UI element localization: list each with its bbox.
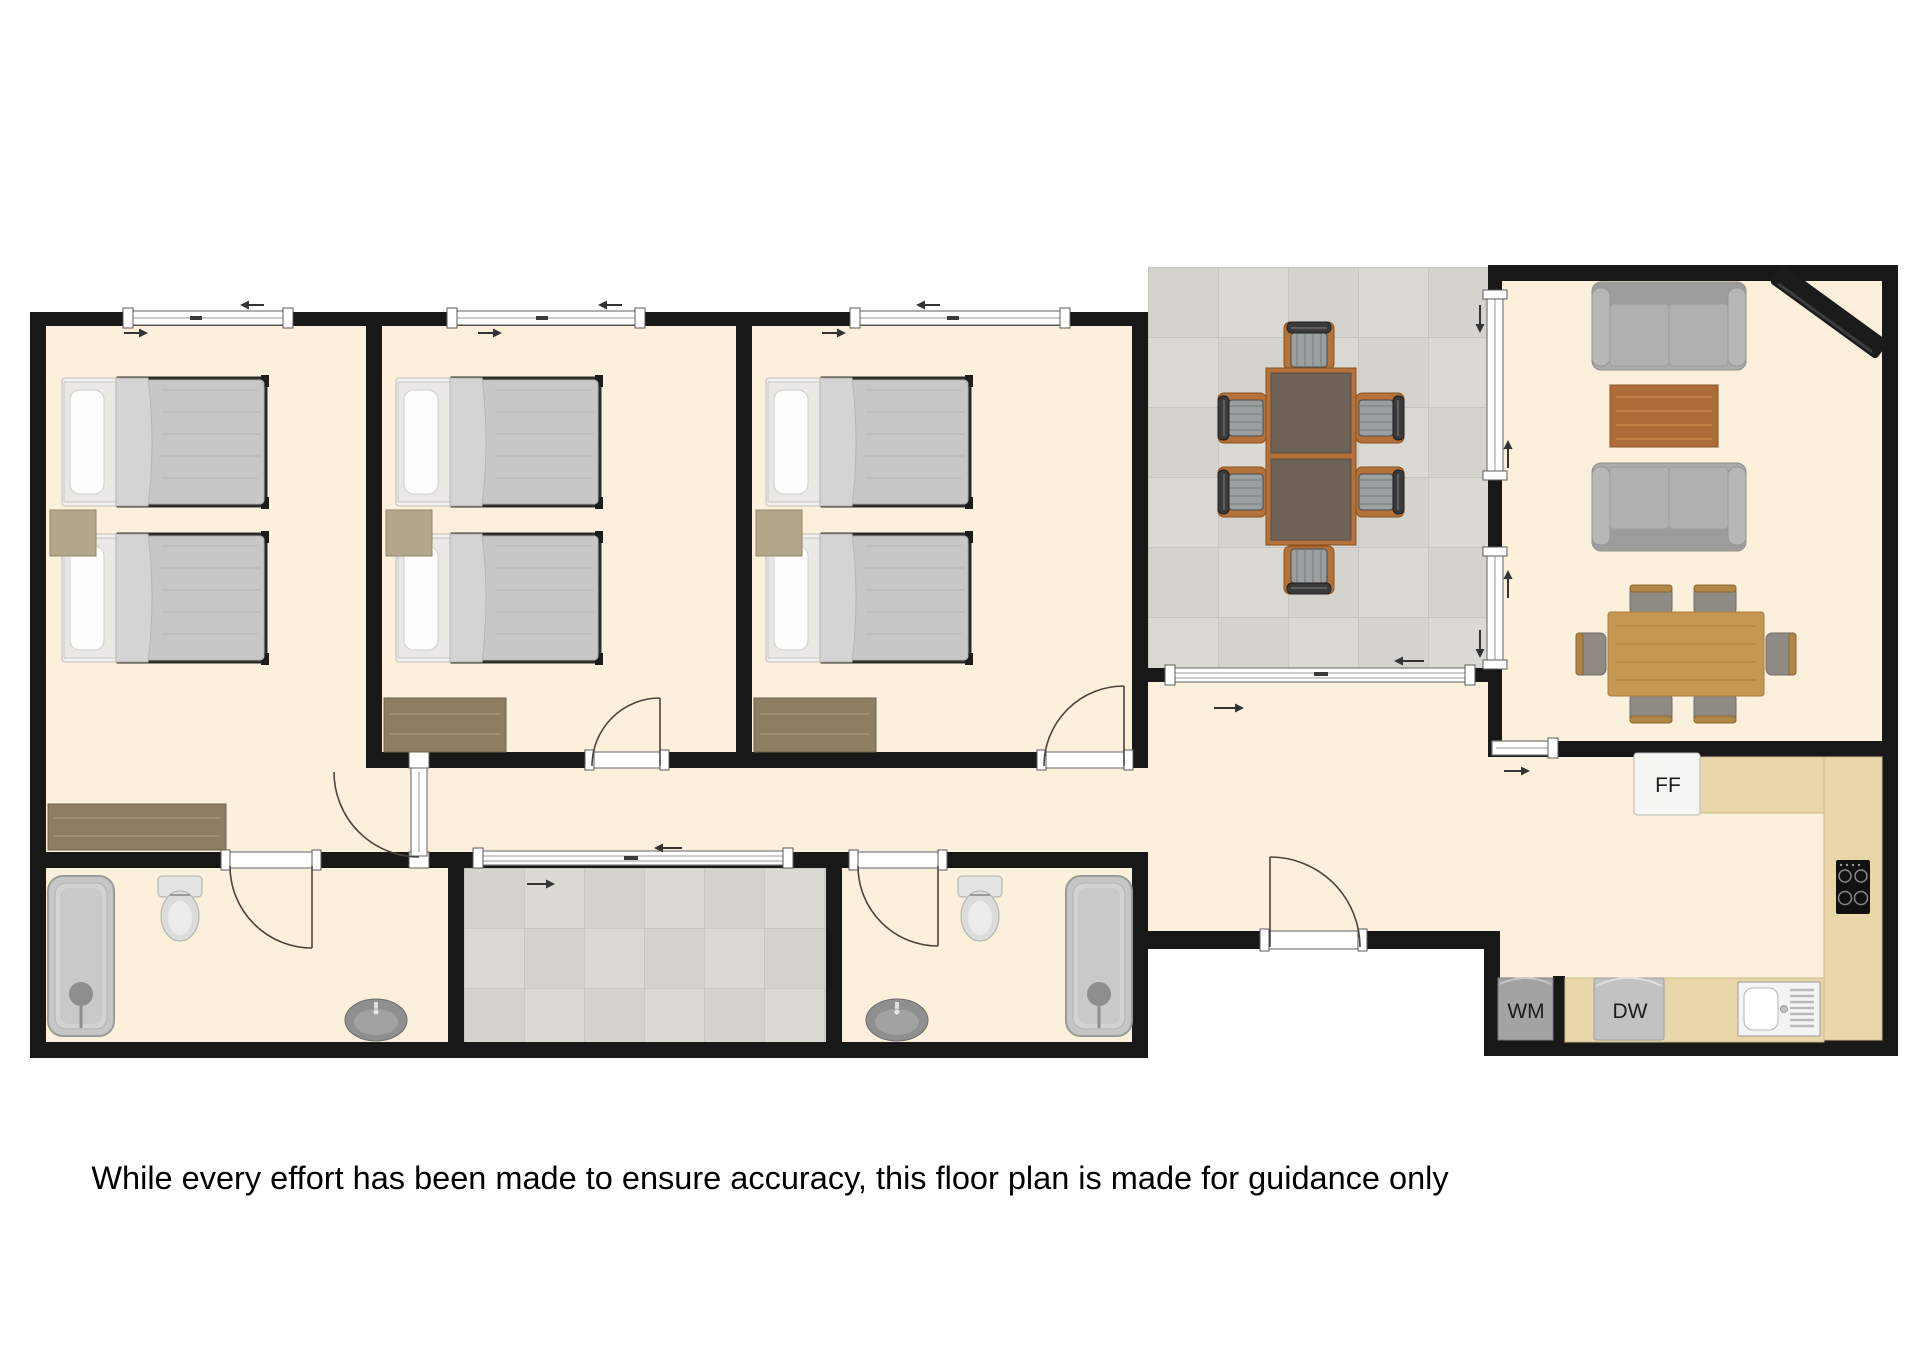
nightstand — [386, 510, 432, 556]
dresser — [754, 698, 876, 752]
terrace-table — [1266, 368, 1356, 545]
sink — [1738, 982, 1820, 1036]
dining-chair — [1630, 585, 1672, 615]
dining-chair — [1576, 633, 1606, 675]
dresser — [384, 698, 506, 752]
window — [1483, 547, 1507, 669]
dining-chair — [1630, 693, 1672, 723]
arrow-left-icon — [598, 301, 622, 310]
window — [123, 308, 293, 328]
disclaimer-text: While every effort has been made to ensu… — [70, 1160, 1470, 1197]
window — [447, 308, 645, 328]
terrace-sliding-door — [1165, 665, 1475, 685]
window — [1483, 290, 1507, 480]
single-bed — [62, 375, 269, 509]
sofa — [1592, 282, 1746, 370]
floor-plan-page: FF WM DW While every effort has been mad… — [0, 0, 1920, 1358]
washbasin — [345, 999, 407, 1041]
sofa — [1592, 463, 1746, 551]
nightstand — [50, 510, 96, 556]
single-bed — [766, 375, 973, 509]
dining-table — [1608, 612, 1764, 696]
fridge-freezer-label: FF — [1655, 774, 1681, 798]
terrace-chair — [1284, 546, 1334, 594]
dresser — [48, 804, 226, 850]
toilet — [158, 876, 202, 941]
window — [850, 308, 1070, 328]
washing-machine-label: WM — [1507, 1000, 1544, 1024]
toilet — [958, 876, 1002, 941]
floor-plan — [0, 0, 1920, 1358]
terrace-chair — [1284, 322, 1334, 370]
hob — [1836, 860, 1870, 914]
terrace-chair — [1218, 467, 1266, 517]
terrace-chair — [1356, 467, 1404, 517]
terrace-chair — [1218, 393, 1266, 443]
bathtub — [48, 876, 114, 1036]
washbasin — [866, 999, 928, 1041]
dining-chair — [1766, 633, 1796, 675]
arrow-left-icon — [916, 301, 940, 310]
dishwasher-label: DW — [1613, 1000, 1648, 1024]
hallway-floor — [1148, 682, 1488, 931]
coffee-table — [1610, 385, 1718, 447]
window — [1492, 738, 1558, 758]
corridor-pass-floor — [1132, 768, 1148, 857]
single-bed — [396, 375, 603, 509]
dining-chair — [1694, 693, 1736, 723]
patio-floor — [464, 868, 826, 1042]
nightstand — [756, 510, 802, 556]
terrace-chair — [1356, 393, 1404, 443]
arrow-left-icon — [240, 301, 264, 310]
dining-chair — [1694, 585, 1736, 615]
patio-sliding-door — [473, 848, 793, 868]
bathtub — [1066, 876, 1132, 1036]
